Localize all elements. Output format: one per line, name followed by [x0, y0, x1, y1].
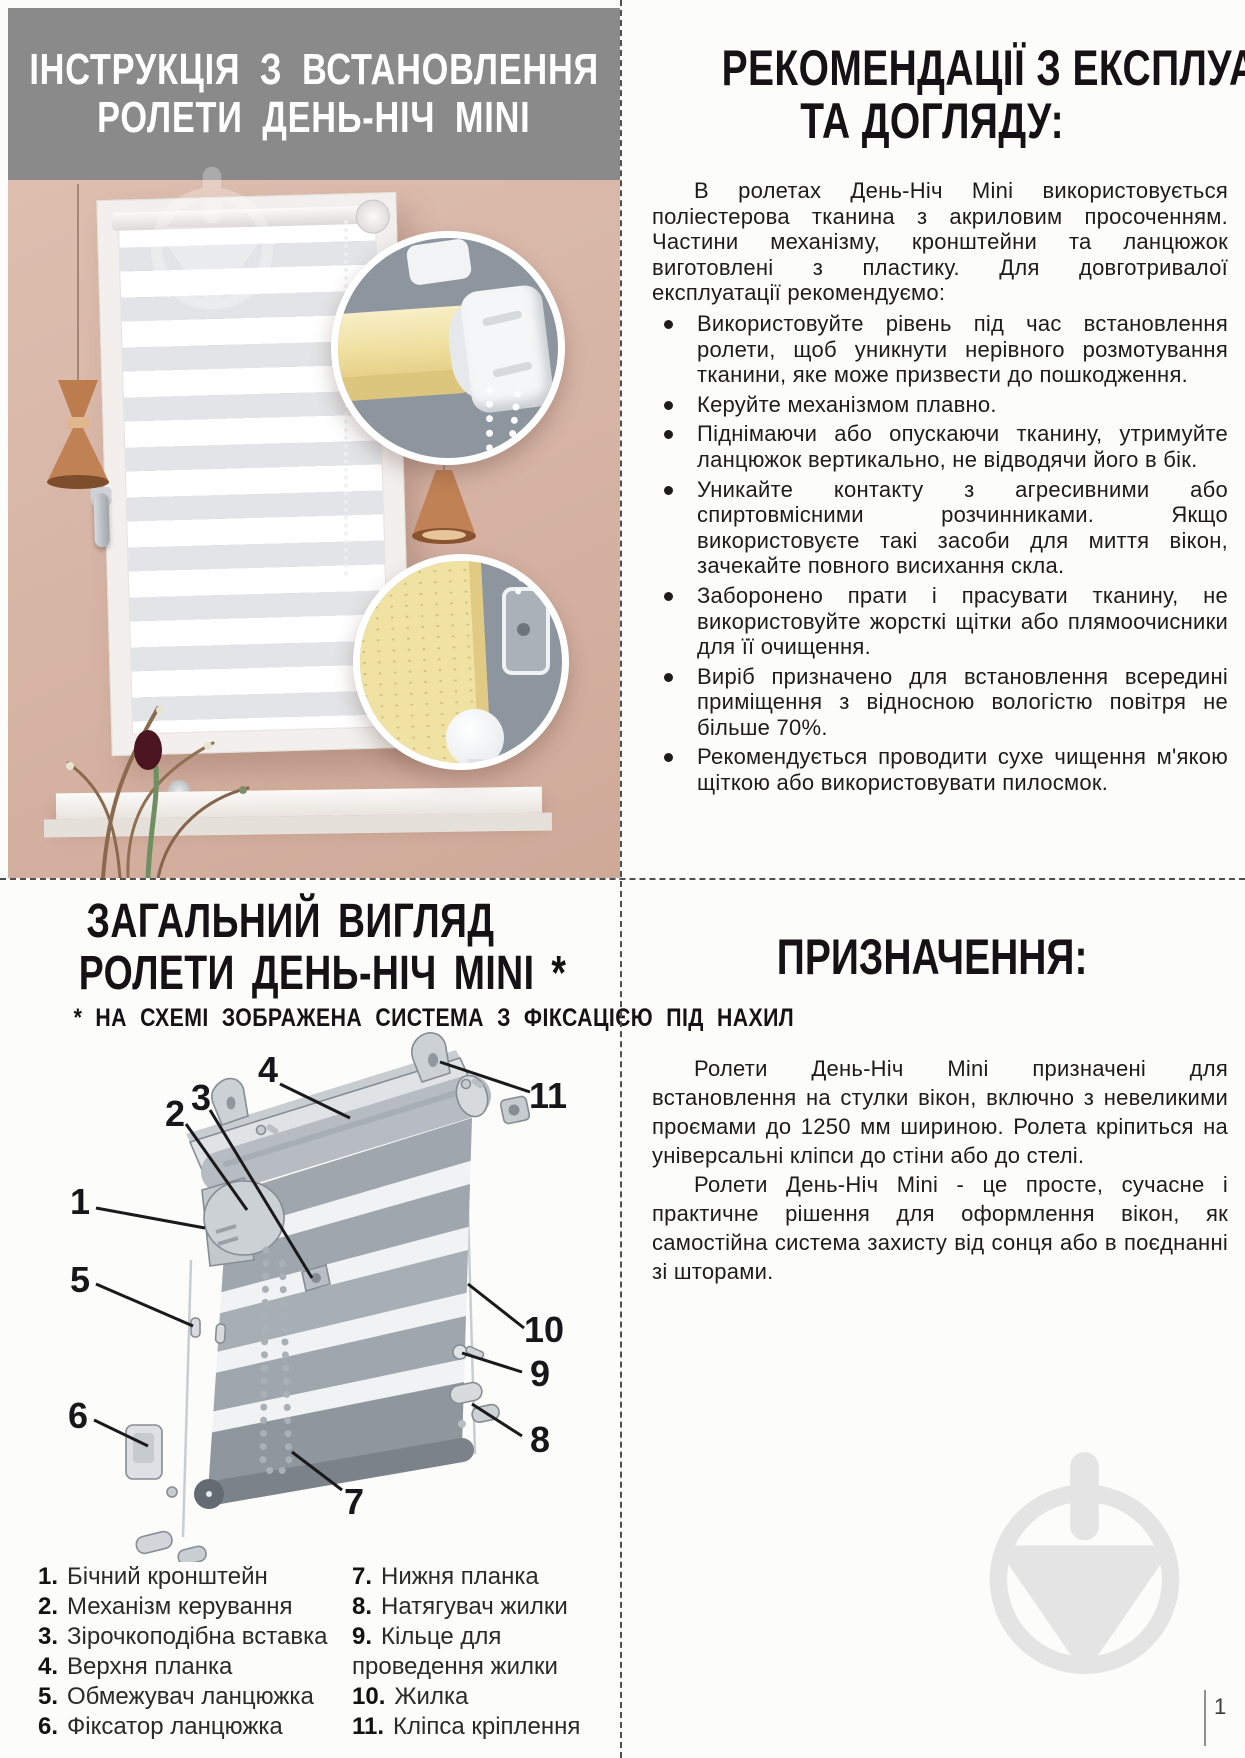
recommendation-text: Уникайте контакту з агресивними або спир…	[697, 477, 1228, 579]
purpose-paragraph-1: Ролети День-Ніч Mini призначені для вста…	[652, 1054, 1228, 1170]
bullet-dot	[664, 673, 673, 682]
chain-wheel	[355, 199, 390, 234]
horizontal-divider	[0, 878, 1245, 880]
legend-column-left: 1.Бічний кронштейн 2.Механізм керування …	[38, 1562, 338, 1742]
legend-item: 7.Нижня планка	[352, 1562, 602, 1592]
list-item: Уникайте контакту з агресивними або спир…	[652, 477, 1228, 579]
recommendations-body: В ролетах День-Ніч Mini використовується…	[652, 178, 1228, 800]
legend-item: 4.Верхня планка	[38, 1652, 338, 1682]
list-item: Заборонено прати і прасувати тканину, не…	[652, 583, 1228, 660]
purpose-paragraph-2: Ролети День-Ніч Mini - це просте, сучасн…	[652, 1170, 1228, 1286]
bullet-dot	[664, 486, 673, 495]
recommendations-list: Використовуйте рівень під час встановлен…	[652, 311, 1228, 796]
callout-11: 11	[529, 1075, 567, 1116]
legend-column-right: 7.Нижня планка 8.Натягувач жилки 9.Кільц…	[352, 1562, 602, 1742]
brand-watermark-icon	[146, 164, 278, 320]
overview-heading-line2: РОЛЕТИ ДЕНЬ-НІЧ MINI *	[79, 948, 567, 1000]
callout-1: 1	[70, 1181, 90, 1222]
mechanism-slot	[492, 361, 533, 378]
purpose-heading: ПРИЗНАЧЕННЯ:	[632, 930, 1233, 984]
fixator-screw	[517, 623, 530, 636]
control-mechanism	[459, 283, 555, 414]
instruction-page: ІНСТРУКЦІЯ З ВСТАНОВЛЕННЯ РОЛЕТИ ДЕНЬ-НІ…	[0, 0, 1245, 1758]
mount-clip	[406, 238, 473, 286]
window-handle	[93, 493, 110, 547]
legend-item: 10.Жилка	[352, 1682, 602, 1712]
list-item: Рекомендується проводити сухе чищення м'…	[652, 744, 1228, 795]
overview-heading-line1: ЗАГАЛЬНИЙ ВИГЛЯД	[86, 896, 494, 948]
inset-fixator-closeup	[353, 554, 569, 770]
recommendations-heading-line2: ТА ДОГЛЯДУ:	[801, 95, 1065, 148]
callout-9: 9	[530, 1353, 550, 1394]
recommendation-text: Піднімаючи або опускаючи тканину, утриму…	[697, 421, 1228, 472]
legend-item: 2.Механізм керування	[38, 1592, 338, 1622]
bullet-dot	[664, 430, 673, 439]
recommendations-heading-line1: РЕКОМЕНДАЦІЇ З ЕКСПЛУАТАЦІЇ	[722, 42, 1245, 95]
legend-item: 8.Натягувач жилки	[352, 1592, 602, 1622]
recommendations-intro: В ролетах День-Ніч Mini використовується…	[652, 178, 1228, 306]
recommendation-text: Використовуйте рівень під час встановлен…	[697, 311, 1228, 388]
bullet-dot	[664, 401, 673, 410]
tensioner-stem	[468, 759, 483, 770]
installation-title-line1: ІНСТРУКЦІЯ З ВСТАНОВЛЕННЯ	[29, 46, 599, 94]
callout-5: 5	[70, 1259, 90, 1300]
blind-exploded-diagram: 1 2 3 4 5 6 7 8 9 10 11	[20, 1022, 580, 1562]
purpose-body: Ролети День-Ніч Mini призначені для вста…	[652, 1054, 1228, 1286]
photo-panel: ІНСТРУКЦІЯ З ВСТАНОВЛЕННЯ РОЛЕТИ ДЕНЬ-НІ…	[8, 8, 620, 878]
callout-10: 10	[524, 1309, 564, 1350]
list-item: Використовуйте рівень під час встановлен…	[652, 311, 1228, 388]
bullet-dot	[664, 753, 673, 762]
guide-wire-left	[183, 1260, 191, 1537]
purpose-heading-text: ПРИЗНАЧЕННЯ:	[777, 930, 1088, 984]
legend-item: 9.Кільце для проведення жилки	[352, 1622, 602, 1682]
inset-mechanism-closeup	[331, 231, 565, 465]
callout-7: 7	[344, 1481, 364, 1522]
callout-2: 2	[165, 1093, 185, 1134]
callout-3: 3	[191, 1077, 211, 1118]
legend-item: 1.Бічний кронштейн	[38, 1562, 338, 1592]
legend-item: 3.Зірочкоподібна вставка	[38, 1622, 338, 1652]
legend-item: 5.Обмежувач ланцюжка	[38, 1682, 338, 1712]
callout-4: 4	[258, 1049, 278, 1090]
recommendation-text: Виріб призначено для встановлення всеред…	[697, 664, 1228, 741]
callout-6: 6	[68, 1395, 88, 1436]
legend-item: 6.Фіксатор ланцюжка	[38, 1712, 338, 1742]
recommendation-text: Рекомендується проводити сухе чищення м'…	[697, 744, 1228, 795]
installation-title-line2: РОЛЕТИ ДЕНЬ-НІЧ MINI	[97, 94, 530, 142]
legend-item: 11.Кліпса кріплення	[352, 1712, 602, 1742]
overview-heading: ЗАГАЛЬНИЙ ВИГЛЯД РОЛЕТИ ДЕНЬ-НІЧ MINI * …	[10, 896, 570, 1032]
list-item: Піднімаючи або опускаючи тканину, утриму…	[652, 421, 1228, 472]
installation-title-banner: ІНСТРУКЦІЯ З ВСТАНОВЛЕННЯ РОЛЕТИ ДЕНЬ-НІ…	[8, 8, 620, 180]
callout-8: 8	[530, 1419, 550, 1460]
bullet-dot	[664, 592, 673, 601]
mechanism-slot	[482, 310, 523, 327]
page-number: 1	[1214, 1694, 1226, 1720]
list-item: Виріб призначено для встановлення всеред…	[652, 664, 1228, 741]
brand-watermark-icon	[982, 1450, 1187, 1688]
bullet-dot	[664, 320, 673, 329]
recommendation-text: Керуйте механізмом плавно.	[697, 392, 1228, 418]
recommendation-text: Заборонено прати і прасувати тканину, не…	[697, 583, 1228, 660]
bead-chain	[486, 386, 493, 465]
recommendations-heading: РЕКОМЕНДАЦІЇ З ЕКСПЛУАТАЦІЇ ТА ДОГЛЯДУ:	[632, 42, 1233, 148]
list-item: Керуйте механізмом плавно.	[652, 392, 1228, 418]
page-number-rule	[1204, 1690, 1206, 1746]
